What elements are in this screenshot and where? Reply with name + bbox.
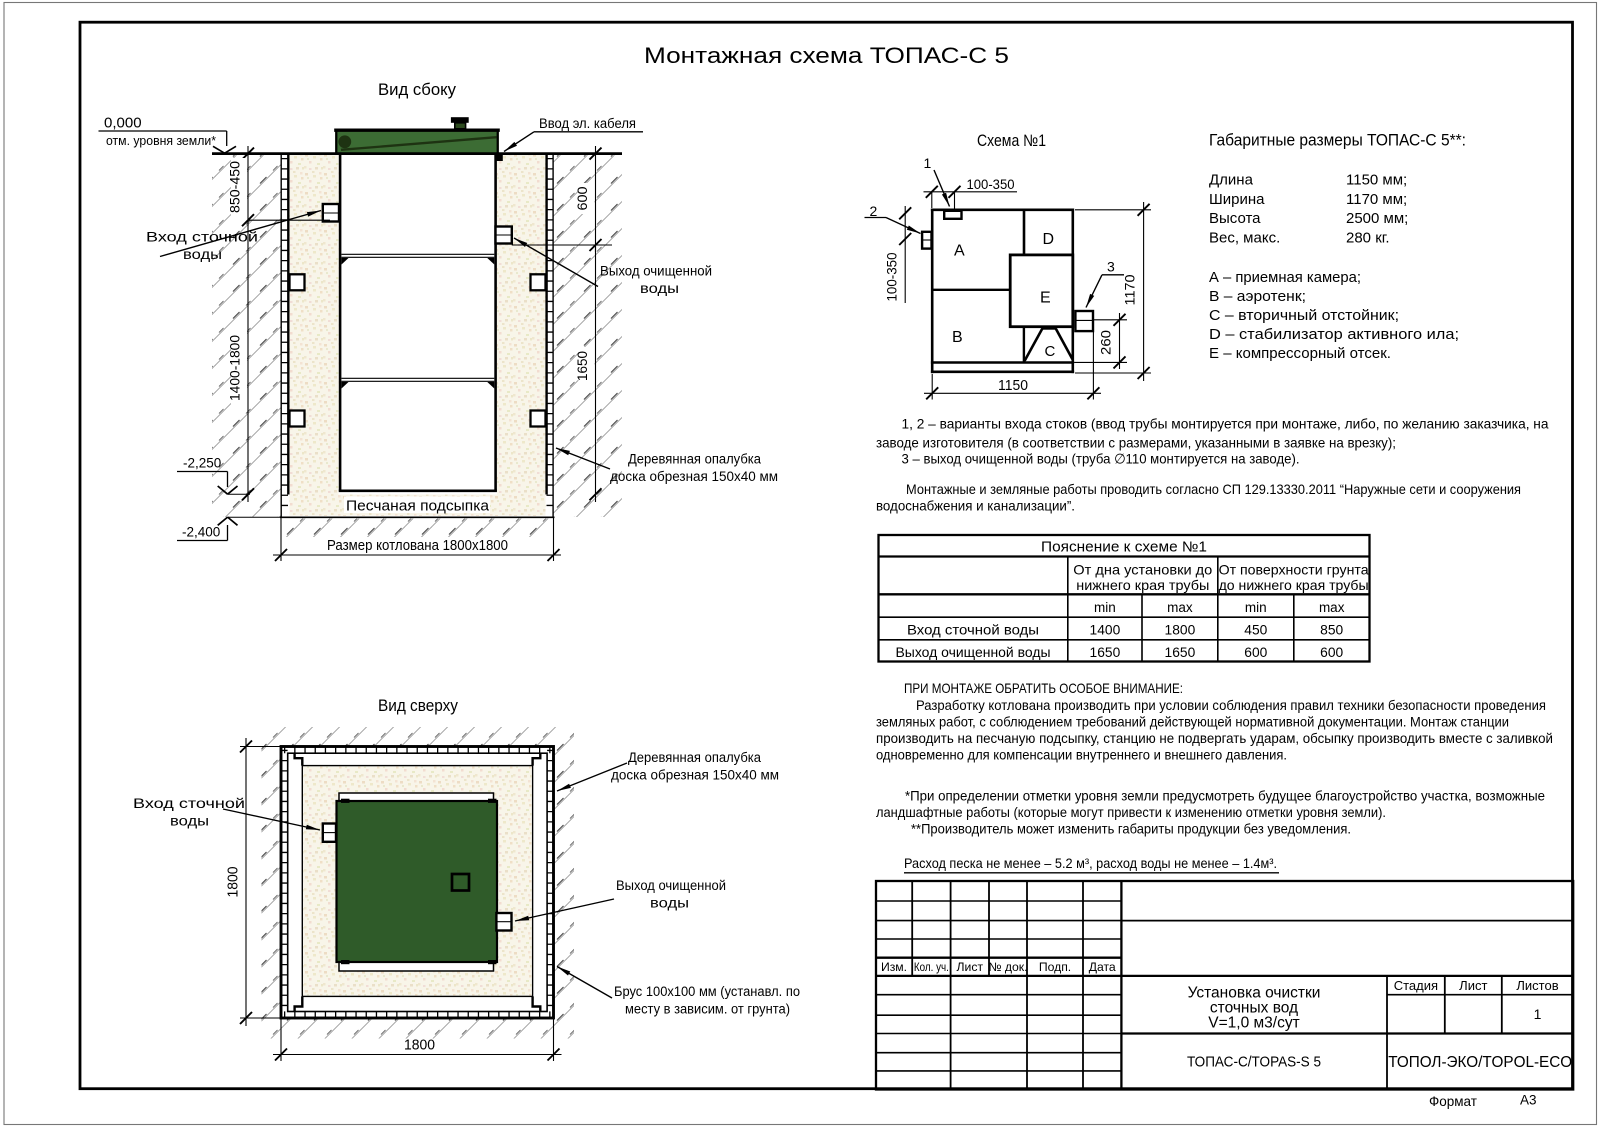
- svg-text:1650: 1650: [1090, 645, 1121, 660]
- svg-text:-2,250: -2,250: [183, 456, 221, 471]
- svg-text:1: 1: [1534, 1006, 1542, 1022]
- svg-text:Выход очищенной: Выход очищенной: [600, 264, 712, 279]
- svg-text:Вид сбоку: Вид сбоку: [378, 80, 456, 99]
- svg-text:D – стабилизатор активного ила: D – стабилизатор активного ила;: [1209, 326, 1459, 343]
- svg-text:воды: воды: [183, 247, 222, 262]
- svg-text:Листов: Листов: [1516, 978, 1558, 993]
- svg-text:*При определении отметки уровн: *При определении отметки уровня земли пр…: [905, 789, 1545, 804]
- svg-text:ТОПОЛ-ЭКО/TOPOL-ECO: ТОПОЛ-ЭКО/TOPOL-ECO: [1388, 1054, 1572, 1071]
- svg-text:1650: 1650: [575, 351, 590, 381]
- svg-text:Деревянная опалубка: Деревянная опалубка: [628, 452, 761, 467]
- svg-text:850: 850: [1320, 623, 1343, 638]
- svg-text:-2,400: -2,400: [182, 525, 220, 540]
- svg-text:Формат: Формат: [1429, 1094, 1477, 1109]
- svg-text:min: min: [1094, 600, 1116, 615]
- svg-text:воды: воды: [650, 896, 689, 911]
- svg-text:С – вторичный отстойник;: С – вторичный отстойник;: [1209, 307, 1399, 324]
- svg-text:Ввод эл. кабеля: Ввод эл. кабеля: [539, 116, 636, 131]
- svg-text:Вход сточной воды: Вход сточной воды: [907, 623, 1039, 638]
- svg-text:месту в зависим. от грунта): месту в зависим. от грунта): [625, 1002, 790, 1017]
- svg-text:В – аэротенк;: В – аэротенк;: [1209, 288, 1306, 305]
- svg-text:0,000: 0,000: [104, 115, 142, 132]
- svg-text:Размер котлована 1800х1800: Размер котлована 1800х1800: [327, 538, 508, 554]
- svg-text:Изм.: Изм.: [881, 960, 907, 974]
- svg-text:отм. уровня земли*: отм. уровня земли*: [106, 133, 216, 148]
- svg-text:От дна установки до: От дна установки до: [1073, 563, 1212, 578]
- svg-text:доска обрезная 150х40 мм: доска обрезная 150х40 мм: [611, 768, 779, 783]
- svg-text:воды: воды: [170, 814, 209, 829]
- svg-text:Разработку котлована производи: Разработку котлована производить при усл…: [916, 698, 1546, 713]
- svg-text:Кол. уч.: Кол. уч.: [914, 961, 949, 974]
- svg-text:1400: 1400: [1090, 623, 1121, 638]
- svg-text:Подп.: Подп.: [1039, 960, 1071, 974]
- svg-text:max: max: [1319, 600, 1345, 615]
- svg-text:min: min: [1245, 600, 1267, 615]
- svg-text:Схема №1: Схема №1: [977, 132, 1046, 150]
- svg-text:A: A: [954, 243, 965, 260]
- svg-text:Деревянная опалубка: Деревянная опалубка: [628, 750, 761, 765]
- svg-text:воды: воды: [640, 281, 679, 296]
- svg-text:Длина: Длина: [1209, 172, 1254, 189]
- svg-text:850-450: 850-450: [228, 161, 243, 213]
- svg-text:600: 600: [575, 187, 590, 211]
- svg-text:заводе изготовителя (в соответ: заводе изготовителя (в соответствии с ра…: [876, 436, 1396, 451]
- svg-text:Высота: Высота: [1209, 210, 1261, 227]
- svg-text:3: 3: [1107, 259, 1115, 275]
- svg-text:1150: 1150: [998, 378, 1028, 394]
- svg-text:ПРИ МОНТАЖЕ ОБРАТИТЬ ОСОБОЕ ВН: ПРИ МОНТАЖЕ ОБРАТИТЬ ОСОБОЕ ВНИМАНИЕ:: [904, 681, 1183, 696]
- svg-text:1800: 1800: [404, 1038, 435, 1054]
- svg-text:Монтажные и земляные работы пр: Монтажные и земляные работы проводить со…: [906, 482, 1521, 497]
- svg-text:Лист: Лист: [957, 960, 984, 974]
- svg-text:C: C: [1045, 343, 1056, 360]
- svg-text:От поверхности грунта: От поверхности грунта: [1219, 563, 1369, 578]
- svg-text:А3: А3: [1520, 1093, 1537, 1108]
- svg-text:доска обрезная 150х40 мм: доска обрезная 150х40 мм: [610, 469, 778, 484]
- svg-text:1400-1800: 1400-1800: [228, 335, 243, 401]
- svg-text:600: 600: [1320, 645, 1343, 660]
- svg-text:260: 260: [1099, 330, 1114, 355]
- svg-text:2: 2: [870, 203, 878, 219]
- svg-text:Брус 100х100 мм (устанавл. по: Брус 100х100 мм (устанавл. по: [614, 984, 800, 999]
- svg-text:Вес, макс.: Вес, макс.: [1209, 230, 1280, 247]
- svg-text:1800: 1800: [1165, 623, 1196, 638]
- svg-text:Выход очищенной воды: Выход очищенной воды: [896, 645, 1051, 660]
- svg-text:Лист: Лист: [1459, 978, 1487, 993]
- svg-text:100-350: 100-350: [885, 253, 900, 302]
- svg-text:B: B: [952, 329, 963, 346]
- svg-text:1: 1: [924, 155, 932, 171]
- svg-text:max: max: [1167, 600, 1193, 615]
- svg-text:земляных работ, с соблюдением: земляных работ, с соблюдением требований…: [876, 715, 1509, 730]
- svg-text:1170 мм;: 1170 мм;: [1346, 191, 1407, 208]
- svg-text:100-350: 100-350: [967, 177, 1015, 192]
- svg-text:1650: 1650: [1165, 645, 1196, 660]
- svg-text:Вход сточной: Вход сточной: [133, 796, 245, 811]
- svg-text:Расход песка не менее – 5.2 м³: Расход песка не менее – 5.2 м³, расход в…: [904, 856, 1277, 871]
- svg-text:Вход сточной: Вход сточной: [146, 230, 258, 245]
- svg-text:Выход очищенной: Выход очищенной: [616, 878, 726, 893]
- svg-text:А – приемная камера;: А – приемная камера;: [1209, 269, 1361, 286]
- svg-text:Песчаная подсыпка: Песчаная подсыпка: [346, 499, 490, 515]
- svg-text:одновременно для компенсации в: одновременно для компенсации внутреннего…: [876, 748, 1287, 763]
- svg-text:D: D: [1043, 231, 1055, 248]
- svg-text:E: E: [1040, 290, 1051, 307]
- svg-text:до нижнего края трубы: до нижнего края трубы: [1219, 578, 1369, 593]
- svg-text:ландшафтные работы (которые мо: ландшафтные работы (которые могут привес…: [876, 805, 1386, 820]
- svg-text:1170: 1170: [1123, 275, 1138, 306]
- svg-text:Вид сверху: Вид сверху: [378, 696, 458, 715]
- svg-text:нижнего края трубы: нижнего края трубы: [1076, 578, 1209, 593]
- svg-text:производить на песчаную подсып: производить на песчаную подсыпку, станци…: [876, 731, 1553, 746]
- svg-text:280 кг.: 280 кг.: [1346, 230, 1390, 247]
- svg-text:1800: 1800: [226, 867, 242, 898]
- svg-text:Ширина: Ширина: [1209, 191, 1265, 208]
- svg-text:ТОПАС-С/TOPAS-S 5: ТОПАС-С/TOPAS-S 5: [1187, 1055, 1321, 1071]
- svg-text:Монтажная схема ТОПАС-С 5: Монтажная схема ТОПАС-С 5: [644, 43, 1009, 68]
- svg-text:Стадия: Стадия: [1394, 978, 1438, 993]
- svg-text:3 – выход очищенной воды (труб: 3 – выход очищенной воды (труба ∅110 мон…: [902, 452, 1300, 467]
- svg-text:**Производитель может изменить: **Производитель может изменить габариты …: [911, 822, 1351, 837]
- svg-text:2500 мм;: 2500 мм;: [1346, 210, 1408, 227]
- svg-text:1, 2 – варианты входа стоков: 1, 2 – варианты входа стоков (ввод трубы…: [902, 417, 1549, 432]
- svg-text:450: 450: [1244, 623, 1267, 638]
- svg-text:водоснабжения и канализации”.: водоснабжения и канализации”.: [876, 499, 1075, 514]
- svg-text:1150 мм;: 1150 мм;: [1346, 172, 1407, 189]
- svg-text:V=1,0 м3/сут: V=1,0 м3/сут: [1208, 1015, 1299, 1032]
- svg-text:№ док.: № док.: [988, 960, 1027, 974]
- svg-text:600: 600: [1244, 645, 1267, 660]
- svg-text:Габаритные размеры ТОПАС-С 5**: Габаритные размеры ТОПАС-С 5**:: [1209, 132, 1466, 150]
- svg-text:Пояснение к схеме №1: Пояснение к схеме №1: [1041, 540, 1207, 556]
- svg-text:Дата: Дата: [1089, 960, 1116, 974]
- svg-text:Е – компрессорный отсек.: Е – компрессорный отсек.: [1209, 345, 1391, 362]
